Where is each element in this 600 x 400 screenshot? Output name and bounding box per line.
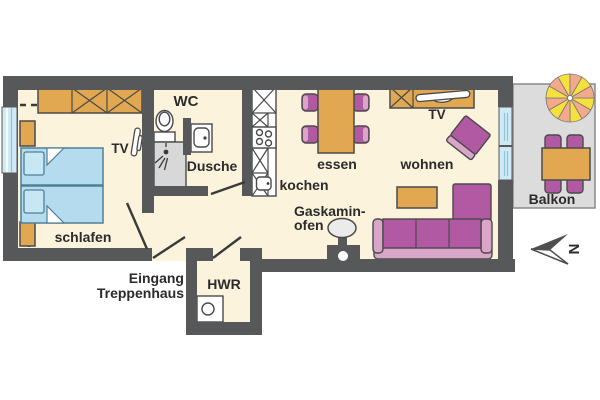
wall-bath-right [242,87,252,196]
sink-basin [194,128,209,147]
wall-bedroom [142,87,154,213]
north-label: N [565,244,582,255]
burner [266,131,272,137]
label-dusche: Dusche [187,158,238,174]
north-arrow-icon: N [531,234,582,264]
label-kochen: kochen [279,177,328,193]
label-eingang: Eingang [129,270,184,286]
wall-sink-stub [183,118,191,155]
wall-top [3,76,513,90]
wall-bath-bottom [154,186,208,196]
chair-back [303,96,308,110]
label-hwr: HWR [207,276,240,292]
nightstand-icon [20,121,35,146]
chair-back [363,96,368,110]
kitchen-unit-icon [252,87,276,196]
pillow-icon [24,152,44,175]
label-gaskamin-2: ofen [294,217,324,233]
parasol-icon [546,74,594,122]
wall-hwr-left [186,248,197,335]
fireplace-stove [328,219,356,238]
burner [257,130,263,136]
washing-machine-icon [197,296,223,322]
label-tv-bedroom: TV [111,141,128,156]
burner [266,140,272,146]
kitchen-faucet [267,182,270,185]
coffee-table-icon [397,187,437,208]
wall-right-lower [498,180,513,272]
label-tv-living: TV [428,107,445,122]
burner [257,139,263,145]
sofa-armrest [373,219,383,253]
window-bedroom [2,107,17,173]
toilet-tank [154,132,175,142]
floor-plan: N WC TV Dusche kochen essen TV wohnen sc… [0,0,600,400]
sofa-seat [383,219,481,248]
pillow-icon [24,190,44,213]
sofa-chaise [453,184,491,221]
wall-bottom-left [3,248,152,261]
nightstand-icon [20,222,35,246]
wall-right-upper [498,76,513,107]
chair-back [363,128,368,142]
label-essen: essen [317,156,357,172]
shower-head [164,150,169,155]
flue-opening [338,251,348,261]
label-schlafen: schlafen [55,229,112,245]
label-wc: WC [174,93,199,110]
label-balkon: Balkon [529,191,576,207]
sofa-armrest [481,219,492,253]
label-wohnen: wohnen [400,156,454,172]
floor-plan-image: N WC TV Dusche kochen essen TV wohnen sc… [0,0,600,400]
window-balcony-door [499,107,512,180]
wall-bottom-right [250,259,515,272]
stove-icon [252,127,276,148]
label-treppenhaus: Treppenhaus [97,285,184,301]
chair-back [303,128,308,142]
balcony-table-icon [542,148,590,180]
toilet-bowl [159,112,170,126]
dining-table-icon [318,88,354,153]
sink-faucet [203,136,206,139]
